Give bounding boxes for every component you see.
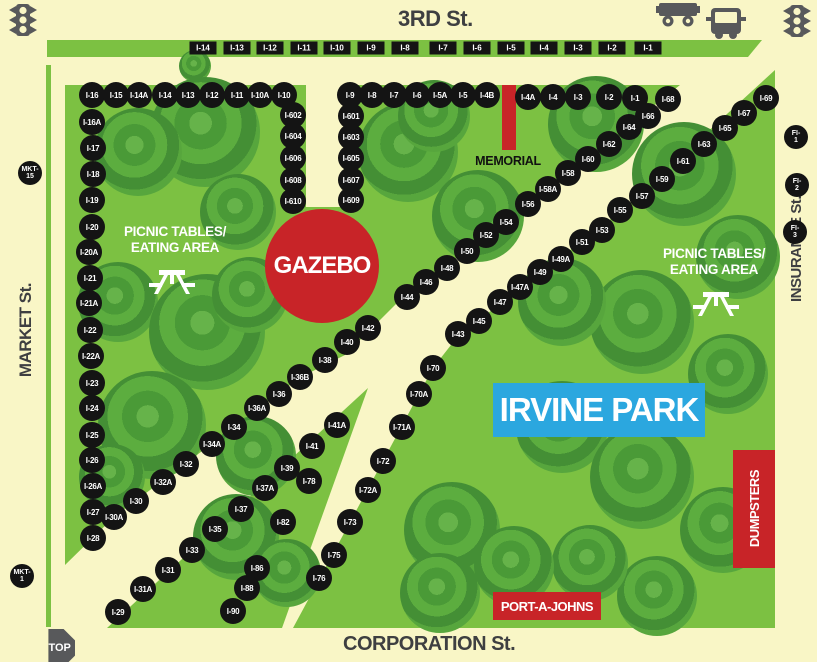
tree (590, 425, 694, 529)
booth-marker: I-16A (79, 109, 105, 135)
park-name-label: IRVINE PARK (500, 391, 699, 429)
booth-marker: I-4B (474, 82, 500, 108)
memorial-label: MEMORIAL (475, 154, 541, 168)
booth-marker: I-12 (199, 82, 225, 108)
booth-marker: I-51 (569, 229, 595, 255)
booth-marker: I-30A (101, 504, 127, 530)
street-booth-marker: I-8 (392, 42, 419, 55)
booth-marker: I-609 (338, 187, 364, 213)
reference-marker: FI-3 (783, 220, 807, 244)
truck-icon-side (656, 0, 700, 35)
picnic-area-east: PICNIC TABLES/ EATING AREA (639, 246, 789, 278)
park-map: MEMORIAL PICNIC TABLES/ EATING AREA PICN… (0, 0, 817, 662)
booth-marker: I-61 (670, 148, 696, 174)
booth-marker: I-36A (244, 395, 270, 421)
booth-marker: I-41 (299, 433, 325, 459)
booth-marker: I-82 (270, 509, 296, 535)
booth-marker: I-72 (370, 448, 396, 474)
street-booth-marker: I-13 (224, 42, 251, 55)
street-label-market: MARKET St. (16, 283, 36, 377)
booth-marker: I-2 (596, 84, 622, 110)
dumpsters-banner: DUMPSTERS (733, 450, 775, 568)
booth-marker: I-13 (175, 82, 201, 108)
reference-marker: MKT-15 (18, 161, 42, 185)
booth-marker: I-30 (123, 488, 149, 514)
booth-marker: I-21A (76, 290, 102, 316)
booth-marker: I-47 (487, 289, 513, 315)
booth-marker: I-37 (228, 496, 254, 522)
street-label-corporation: CORPORATION St. (343, 633, 515, 656)
park-name-banner: IRVINE PARK (493, 383, 705, 437)
street-booth-marker: I-2 (599, 42, 626, 55)
memorial-marker (502, 85, 516, 150)
booth-marker: I-24 (79, 395, 105, 421)
port-a-johns-label: PORT-A-JOHNS (501, 599, 593, 614)
booth-marker: I-14A (126, 82, 152, 108)
booth-marker: I-76 (306, 565, 332, 591)
booth-marker: I-88 (234, 575, 260, 601)
booth-marker: I-63 (691, 131, 717, 157)
booth-marker: I-20 (79, 214, 105, 240)
stop-sign: STOP (37, 629, 75, 662)
booth-marker: I-78 (296, 468, 322, 494)
street-booth-marker: I-6 (464, 42, 491, 55)
tree (400, 553, 480, 633)
booth-marker: I-32 (173, 451, 199, 477)
booth-marker: I-71A (389, 414, 415, 440)
traffic-light-icon-west (6, 3, 40, 42)
booth-marker: I-34 (221, 414, 247, 440)
booth-marker: I-33 (179, 537, 205, 563)
booth-marker: I-28 (80, 525, 106, 551)
truck-icon-front (705, 7, 747, 44)
booth-marker: I-22A (78, 343, 104, 369)
booth-marker: I-36B (287, 364, 313, 390)
booth-marker: I-90 (220, 598, 246, 624)
booth-marker: I-26 (79, 447, 105, 473)
booth-marker: I-21 (77, 265, 103, 291)
booth-marker: I-70A (406, 381, 432, 407)
traffic-light-icon-east (780, 4, 814, 43)
booth-marker: I-36 (266, 381, 292, 407)
street-booth-marker: I-7 (430, 42, 457, 55)
booth-marker: I-55 (607, 197, 633, 223)
street-booth-marker: I-14 (190, 42, 217, 55)
reference-marker: FI-1 (784, 125, 808, 149)
booth-marker: I-32A (150, 469, 176, 495)
street-booth-marker: I-11 (291, 42, 318, 55)
booth-marker: I-31 (155, 557, 181, 583)
booth-marker: I-25 (79, 422, 105, 448)
booth-marker: I-73 (337, 509, 363, 535)
booth-marker: I-44 (394, 284, 420, 310)
booth-marker: I-20A (76, 239, 102, 265)
booth-marker: I-610 (280, 188, 306, 214)
booth-marker: I-34A (199, 431, 225, 457)
tree (94, 108, 182, 196)
gazebo: GAZEBO (265, 209, 379, 323)
street-booth-marker: I-4 (531, 42, 558, 55)
street-label-3rd: 3RD St. (398, 6, 473, 32)
booth-marker: I-35 (202, 516, 228, 542)
reference-marker: MKT-1 (10, 564, 34, 588)
street-booth-marker: I-12 (257, 42, 284, 55)
market-st-curb-line (46, 65, 51, 627)
booth-marker: I-37A (252, 475, 278, 501)
booth-marker: I-70 (420, 355, 446, 381)
booth-marker: I-72A (355, 477, 381, 503)
booth-marker: I-41A (324, 412, 350, 438)
booth-marker: I-16 (79, 82, 105, 108)
dumpsters-label: DUMPSTERS (747, 470, 762, 547)
booth-marker: I-5 (450, 82, 476, 108)
booth-marker: I-75 (321, 542, 347, 568)
booth-marker: I-40 (334, 329, 360, 355)
street-booth-marker: I-3 (565, 42, 592, 55)
tree (617, 556, 697, 636)
booth-marker: I-3 (565, 84, 591, 110)
booth-marker: I-26A (80, 473, 106, 499)
street-booth-marker: I-1 (635, 42, 662, 55)
booth-marker: I-17 (80, 135, 106, 161)
booth-marker: I-56 (515, 191, 541, 217)
booth-marker: I-65 (712, 115, 738, 141)
street-booth-marker: I-10 (324, 42, 351, 55)
booth-marker: I-43 (445, 321, 471, 347)
booth-marker: I-38 (312, 347, 338, 373)
tree (590, 270, 694, 374)
booth-marker: I-4 (540, 84, 566, 110)
street-label-insurance: INSURANCE St. (788, 196, 805, 302)
street-booth-marker: I-5 (498, 42, 525, 55)
reference-marker: FI-2 (785, 173, 809, 197)
gazebo-label: GAZEBO (274, 252, 371, 280)
booth-marker: I-4A (515, 84, 541, 110)
booth-marker: I-57 (629, 183, 655, 209)
street-booth-marker: I-9 (358, 42, 385, 55)
port-a-johns-banner: PORT-A-JOHNS (493, 592, 601, 620)
booth-marker: I-29 (105, 599, 131, 625)
booth-marker: I-10A (247, 82, 273, 108)
picnic-table-icon-west (149, 270, 195, 303)
booth-marker: I-69 (753, 85, 779, 111)
picnic-table-icon-east (693, 292, 739, 325)
booth-marker: I-18 (80, 161, 106, 187)
picnic-area-west: PICNIC TABLES/ EATING AREA (100, 224, 250, 256)
booth-marker: I-19 (79, 187, 105, 213)
booth-marker: I-31A (130, 576, 156, 602)
booth-marker: I-22 (77, 317, 103, 343)
booth-marker: I-23 (79, 370, 105, 396)
tree (552, 525, 628, 601)
